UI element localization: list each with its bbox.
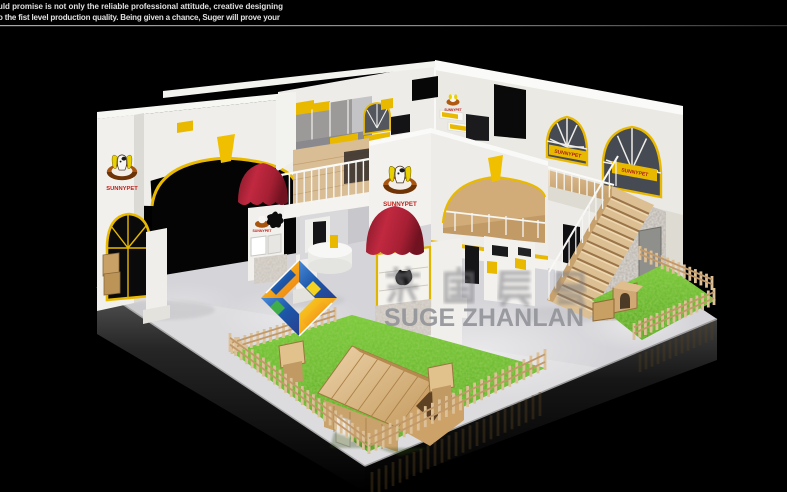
svg-text:uld promise is not only the re: uld promise is not only the reliable pro… [0,2,283,11]
svg-text:SUNNYPET: SUNNYPET [383,201,417,208]
svg-text:SUNNYPET: SUNNYPET [444,108,461,112]
svg-text:SUNNYPET: SUNNYPET [252,229,272,233]
svg-text:SUGE ZHANLAN: SUGE ZHANLAN [384,304,584,332]
svg-text:SUNNYPET: SUNNYPET [106,186,138,192]
svg-text:o the fist level production qu: o the fist level production quality. Bei… [0,13,280,22]
